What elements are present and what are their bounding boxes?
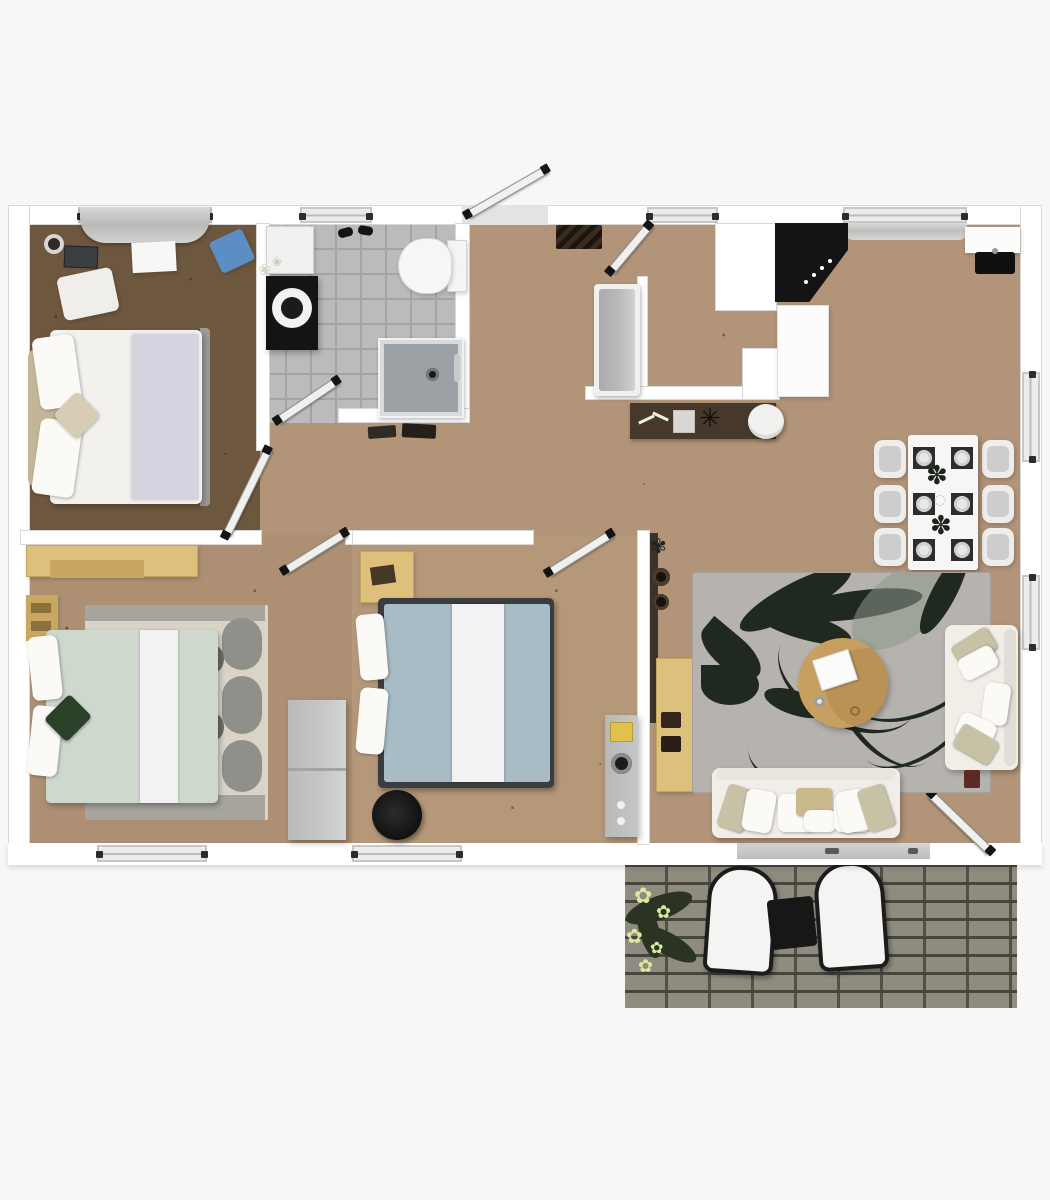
yellow-item (610, 722, 633, 742)
bedroom-3 (0, 0, 1050, 1200)
grey-dresser (605, 715, 638, 837)
dresser-bowl (611, 753, 632, 774)
double-bed-3 (356, 596, 556, 790)
floor-plan-canvas: ✿ ✿ ✿ ✿ ✿ (0, 0, 1050, 1200)
bed-runner (452, 604, 504, 782)
pillow (355, 613, 389, 681)
desk-item (370, 564, 396, 585)
pillow (355, 687, 389, 755)
dark-pouf (372, 790, 422, 840)
